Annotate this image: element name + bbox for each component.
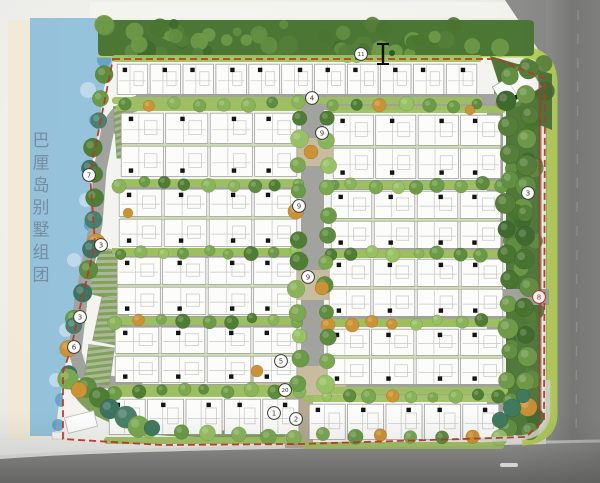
marker-number: 7 <box>87 172 91 180</box>
tree-icon <box>158 248 168 258</box>
entry-marker <box>473 170 477 174</box>
marker-number: 4 <box>310 95 315 103</box>
forest-canopy <box>169 19 179 29</box>
tree-icon <box>292 350 309 367</box>
accent-tree-icon <box>465 105 475 115</box>
tree-icon <box>79 260 98 279</box>
entry-marker <box>421 68 425 72</box>
tree-icon <box>320 158 336 174</box>
tree-icon <box>193 99 206 112</box>
entry-marker <box>389 195 393 199</box>
tree-icon <box>260 429 276 445</box>
tree-highlight <box>293 186 299 192</box>
house-unit <box>117 64 148 94</box>
tree-icon <box>156 314 167 325</box>
tree-highlight <box>432 180 438 186</box>
tree-highlight <box>110 318 116 324</box>
tree-icon <box>517 205 533 221</box>
house-unit <box>417 191 458 218</box>
tree-highlight <box>500 247 507 254</box>
tree-icon <box>456 316 469 329</box>
entry-marker <box>472 195 476 199</box>
house-unit <box>417 221 458 248</box>
entry-marker <box>439 170 443 174</box>
tree-highlight <box>524 425 531 432</box>
tree-icon <box>115 249 126 260</box>
tree-icon <box>83 138 102 157</box>
tree-icon <box>319 255 333 269</box>
entry-marker <box>180 168 184 172</box>
tree-highlight <box>76 286 83 293</box>
tree-icon <box>432 315 442 325</box>
entry-marker <box>265 374 269 378</box>
marker-number: 3 <box>526 190 530 198</box>
house-unit <box>216 64 247 94</box>
tree-icon <box>430 178 445 193</box>
entry-marker <box>337 308 341 312</box>
forest-canopy <box>260 37 277 54</box>
tree-icon <box>175 314 190 329</box>
entry-marker <box>232 117 236 121</box>
tree-highlight <box>293 234 300 241</box>
house-unit <box>207 327 251 353</box>
entry-marker <box>123 68 127 72</box>
house-unit <box>373 259 415 286</box>
entry-marker <box>230 306 234 310</box>
tree-highlight <box>322 113 328 119</box>
tree-highlight <box>180 180 185 185</box>
accent-tree-icon <box>315 281 329 295</box>
entry-marker <box>439 240 443 244</box>
legend-marker-7: 7 <box>83 169 96 182</box>
tree-icon <box>290 232 307 249</box>
entry-marker <box>461 68 465 72</box>
forest-canopy <box>318 29 332 43</box>
house-unit <box>417 289 459 316</box>
house-unit <box>121 113 163 143</box>
plan-title-char: 组 <box>33 243 50 263</box>
forest-canopy <box>94 15 113 34</box>
tree-icon <box>521 106 539 124</box>
tree-highlight <box>158 386 162 390</box>
tree-icon <box>361 389 376 404</box>
tree-highlight <box>195 101 200 106</box>
tree-highlight <box>415 250 419 254</box>
sprout-icon <box>389 50 395 56</box>
tree-highlight <box>292 378 299 385</box>
forest-canopy <box>240 34 252 46</box>
forest-canopy <box>373 40 388 55</box>
tree-icon <box>498 318 519 339</box>
marker-number: 11 <box>357 52 365 58</box>
plan-title-char: 墅 <box>33 221 50 241</box>
house-unit <box>374 191 415 218</box>
entry-marker <box>439 119 443 123</box>
tree-highlight <box>292 307 299 314</box>
tree-icon <box>366 315 379 328</box>
tree-highlight <box>493 392 498 397</box>
tree-icon <box>320 208 336 224</box>
tree-highlight <box>517 252 525 260</box>
entry-marker <box>229 374 233 378</box>
tree-highlight <box>246 385 252 391</box>
tree-highlight <box>498 196 506 204</box>
tree-highlight <box>429 394 433 398</box>
house-unit <box>166 146 208 176</box>
house-unit <box>460 191 501 218</box>
tree-highlight <box>519 229 527 237</box>
entry-marker <box>265 261 269 265</box>
tree-highlight <box>294 97 299 102</box>
house-unit <box>163 257 206 284</box>
tree-highlight <box>504 174 511 181</box>
tree-icon <box>476 176 490 190</box>
tree-icon <box>320 111 335 126</box>
tree-highlight <box>503 147 511 155</box>
legend-marker-11: 11 <box>355 48 368 61</box>
tree-icon <box>351 99 363 111</box>
tree-highlight <box>425 100 431 106</box>
tree-icon <box>290 375 306 391</box>
house-unit <box>333 148 373 178</box>
tree-highlight <box>251 181 256 186</box>
house-unit <box>386 404 422 439</box>
tree-icon <box>466 430 480 444</box>
legend-marker-8: 8 <box>533 291 546 304</box>
house-unit <box>417 259 459 286</box>
marker-number: 3 <box>99 242 103 250</box>
tree-icon <box>517 326 534 343</box>
legend-marker-1: 1 <box>268 407 281 420</box>
tree-highlight <box>322 356 328 362</box>
house-unit <box>329 259 371 286</box>
entry-marker <box>361 408 365 412</box>
tree-highlight <box>345 391 350 396</box>
house-unit <box>418 115 458 145</box>
house-unit <box>164 219 207 246</box>
tree-icon <box>267 97 278 108</box>
tree-highlight <box>86 141 94 149</box>
entry-marker <box>265 331 269 335</box>
house-unit <box>207 356 251 382</box>
house-unit <box>331 221 372 248</box>
tree-icon <box>498 221 515 238</box>
tree-icon <box>290 157 306 173</box>
tree-highlight <box>160 178 165 183</box>
tree-icon <box>320 329 337 346</box>
entry-marker <box>266 238 270 242</box>
tree-icon <box>430 246 444 260</box>
tree-highlight <box>180 385 185 390</box>
entry-marker <box>127 193 131 197</box>
tree-highlight <box>219 100 224 105</box>
house-unit <box>329 289 371 316</box>
tree-highlight <box>499 94 507 102</box>
forest-canopy <box>406 35 421 50</box>
tree-icon <box>472 389 484 401</box>
tree-icon <box>516 155 537 176</box>
house-unit <box>209 219 252 246</box>
entry-marker <box>386 333 390 337</box>
tree-icon <box>174 425 189 440</box>
tree-highlight <box>61 372 69 380</box>
tree-highlight <box>95 93 102 100</box>
marker-number: 3 <box>78 314 82 322</box>
tree-icon <box>292 95 306 109</box>
forest-canopy <box>376 21 392 37</box>
palm-tree-icon <box>516 389 530 403</box>
tree-highlight <box>121 100 126 105</box>
tree-icon <box>287 280 305 298</box>
tree-icon <box>435 431 448 444</box>
tree-icon <box>133 314 145 326</box>
tree-highlight <box>321 307 327 313</box>
water-highlight <box>67 253 81 267</box>
forest-canopy <box>491 39 509 57</box>
accent-tree-icon <box>123 208 133 218</box>
house-unit <box>253 327 297 353</box>
tree-icon <box>269 180 281 192</box>
house-unit <box>376 115 416 145</box>
entry-marker <box>472 376 476 380</box>
legend-marker-3: 3 <box>522 187 535 200</box>
tree-icon <box>374 429 387 442</box>
entry-marker <box>316 408 320 412</box>
tree-highlight <box>368 247 373 252</box>
tree-highlight <box>388 391 393 396</box>
tree-highlight <box>411 183 417 189</box>
tree-highlight <box>437 433 442 438</box>
tree-highlight <box>350 431 356 437</box>
house-unit <box>416 358 458 384</box>
house-unit <box>121 146 163 176</box>
tree-highlight <box>227 318 233 324</box>
tree-highlight <box>478 178 484 184</box>
entry-marker <box>229 331 233 335</box>
house-unit <box>461 358 503 384</box>
house-unit <box>163 287 206 314</box>
house-unit <box>115 356 159 382</box>
tree-highlight <box>363 391 369 397</box>
tree-icon <box>178 179 190 191</box>
tree-icon <box>447 101 460 114</box>
tree-icon <box>139 176 150 187</box>
entry-marker <box>129 168 133 172</box>
entry-marker <box>266 193 270 197</box>
entry-marker <box>298 68 302 72</box>
tree-icon <box>373 98 387 112</box>
tree-highlight <box>473 100 477 104</box>
tree-icon <box>516 372 534 390</box>
tree-icon <box>410 318 422 330</box>
tree-highlight <box>322 331 329 338</box>
house-unit <box>117 257 160 284</box>
tree-icon <box>228 180 240 192</box>
tree-icon <box>423 98 437 112</box>
tree-icon <box>319 180 334 195</box>
entry-marker <box>439 195 443 199</box>
legend-marker-5: 5 <box>275 355 288 368</box>
marker-number: 9 <box>297 203 301 211</box>
tree-icon <box>385 248 400 263</box>
tree-icon <box>289 304 306 321</box>
tree-highlight <box>322 230 329 237</box>
tree-highlight <box>206 247 210 251</box>
entry-marker <box>438 376 442 380</box>
tree-highlight <box>294 331 300 337</box>
entry-marker <box>177 306 181 310</box>
tree-highlight <box>200 386 204 390</box>
entry-marker <box>179 238 183 242</box>
tree-icon <box>119 98 132 111</box>
tree-highlight <box>323 210 330 217</box>
marker-number: 20 <box>281 388 289 394</box>
legend-marker-4: 4 <box>306 92 319 105</box>
entry-marker <box>472 240 476 244</box>
tree-icon <box>517 85 536 104</box>
house-unit <box>208 287 251 314</box>
entry-marker <box>388 263 392 267</box>
tree-icon <box>292 329 307 344</box>
tree-icon <box>86 189 104 207</box>
entry-marker <box>473 119 477 123</box>
plan-title-char: 巴 <box>33 131 50 151</box>
tree-icon <box>345 178 357 190</box>
entry-marker <box>230 68 234 72</box>
tree-icon <box>199 425 215 441</box>
entry-marker <box>406 408 410 412</box>
entry-marker <box>231 238 235 242</box>
house-unit <box>164 189 207 216</box>
tree-icon <box>344 248 357 261</box>
entry-marker <box>237 403 241 407</box>
entry-marker <box>176 374 180 378</box>
tree-highlight <box>134 316 139 321</box>
tree-highlight <box>524 109 531 116</box>
entry-marker <box>353 68 357 72</box>
entry-marker <box>335 376 339 380</box>
entry-marker <box>163 68 167 72</box>
entry-marker <box>473 263 477 267</box>
plan-title-char: 岛 <box>33 176 50 196</box>
tree-highlight <box>178 316 184 322</box>
marker-number: 9 <box>306 274 310 282</box>
tree-icon <box>517 129 536 148</box>
tree-icon <box>500 144 520 164</box>
tree-icon <box>500 296 517 313</box>
house-unit <box>416 329 458 355</box>
tree-icon <box>496 91 516 111</box>
entry-marker <box>265 306 269 310</box>
entry-marker <box>326 68 330 72</box>
tree-highlight <box>371 182 377 188</box>
tree-highlight <box>501 321 509 329</box>
entry-marker <box>180 117 184 121</box>
house-unit <box>380 64 411 94</box>
tree-highlight <box>205 317 210 322</box>
tree-icon <box>108 316 122 330</box>
house-unit <box>210 146 252 176</box>
tree-highlight <box>292 255 299 262</box>
entry-marker <box>206 403 210 407</box>
tree-icon <box>292 111 307 126</box>
house-unit <box>372 358 414 384</box>
tree-icon <box>203 315 217 329</box>
tree-icon <box>268 247 279 258</box>
tree-icon <box>399 96 414 111</box>
entry-marker <box>161 403 165 407</box>
tree-highlight <box>353 101 358 106</box>
house-unit <box>161 327 205 353</box>
tree-icon <box>409 181 423 195</box>
house-unit <box>209 189 252 216</box>
tree-icon <box>343 389 356 402</box>
tree-icon <box>201 178 215 192</box>
plan-title-char: 厘 <box>33 153 50 173</box>
tree-highlight <box>294 352 301 359</box>
tree-icon <box>366 245 378 257</box>
tree-icon <box>157 385 168 396</box>
tree-highlight <box>520 329 527 336</box>
tree-highlight <box>519 179 527 187</box>
tree-icon <box>449 390 463 404</box>
tree-highlight <box>375 100 380 105</box>
tree-highlight <box>520 132 528 140</box>
marker-number: 5 <box>279 358 283 366</box>
tree-icon <box>112 179 126 193</box>
marker-number: 2 <box>294 416 298 424</box>
tree-highlight <box>117 251 121 255</box>
tree-highlight <box>503 70 510 77</box>
tree-highlight <box>85 243 92 250</box>
house-unit <box>333 115 373 145</box>
tree-highlight <box>394 183 399 188</box>
house-unit <box>372 329 414 355</box>
marker-number: 8 <box>537 294 541 302</box>
house-unit <box>348 64 379 94</box>
entry-marker <box>339 240 343 244</box>
legend-marker-9: 9 <box>316 127 329 140</box>
house-unit <box>255 146 297 176</box>
tree-highlight <box>246 248 252 254</box>
legend-marker-3: 3 <box>74 311 87 324</box>
forest-canopy <box>233 27 242 36</box>
paper-top-strip <box>90 2 560 18</box>
tree-highlight <box>169 98 174 103</box>
entry-marker <box>232 168 236 172</box>
entry-marker <box>190 68 194 72</box>
tree-highlight <box>160 250 164 254</box>
entry-marker <box>179 193 183 197</box>
tree-highlight <box>519 208 526 215</box>
accent-tree-icon <box>71 382 87 398</box>
tree-highlight <box>432 248 438 254</box>
entry-marker <box>266 168 270 172</box>
tree-icon <box>231 427 246 442</box>
tree-icon <box>475 313 488 326</box>
forest-canopy <box>221 34 233 46</box>
tree-icon <box>178 383 191 396</box>
tree-highlight <box>376 431 381 436</box>
entry-marker <box>393 68 397 72</box>
tree-icon <box>268 314 279 325</box>
tree-highlight <box>263 431 269 437</box>
marker-number: 1 <box>272 410 276 418</box>
tree-highlight <box>323 320 329 326</box>
tree-icon <box>177 248 189 260</box>
house-unit <box>413 64 444 94</box>
tree-highlight <box>347 320 353 326</box>
